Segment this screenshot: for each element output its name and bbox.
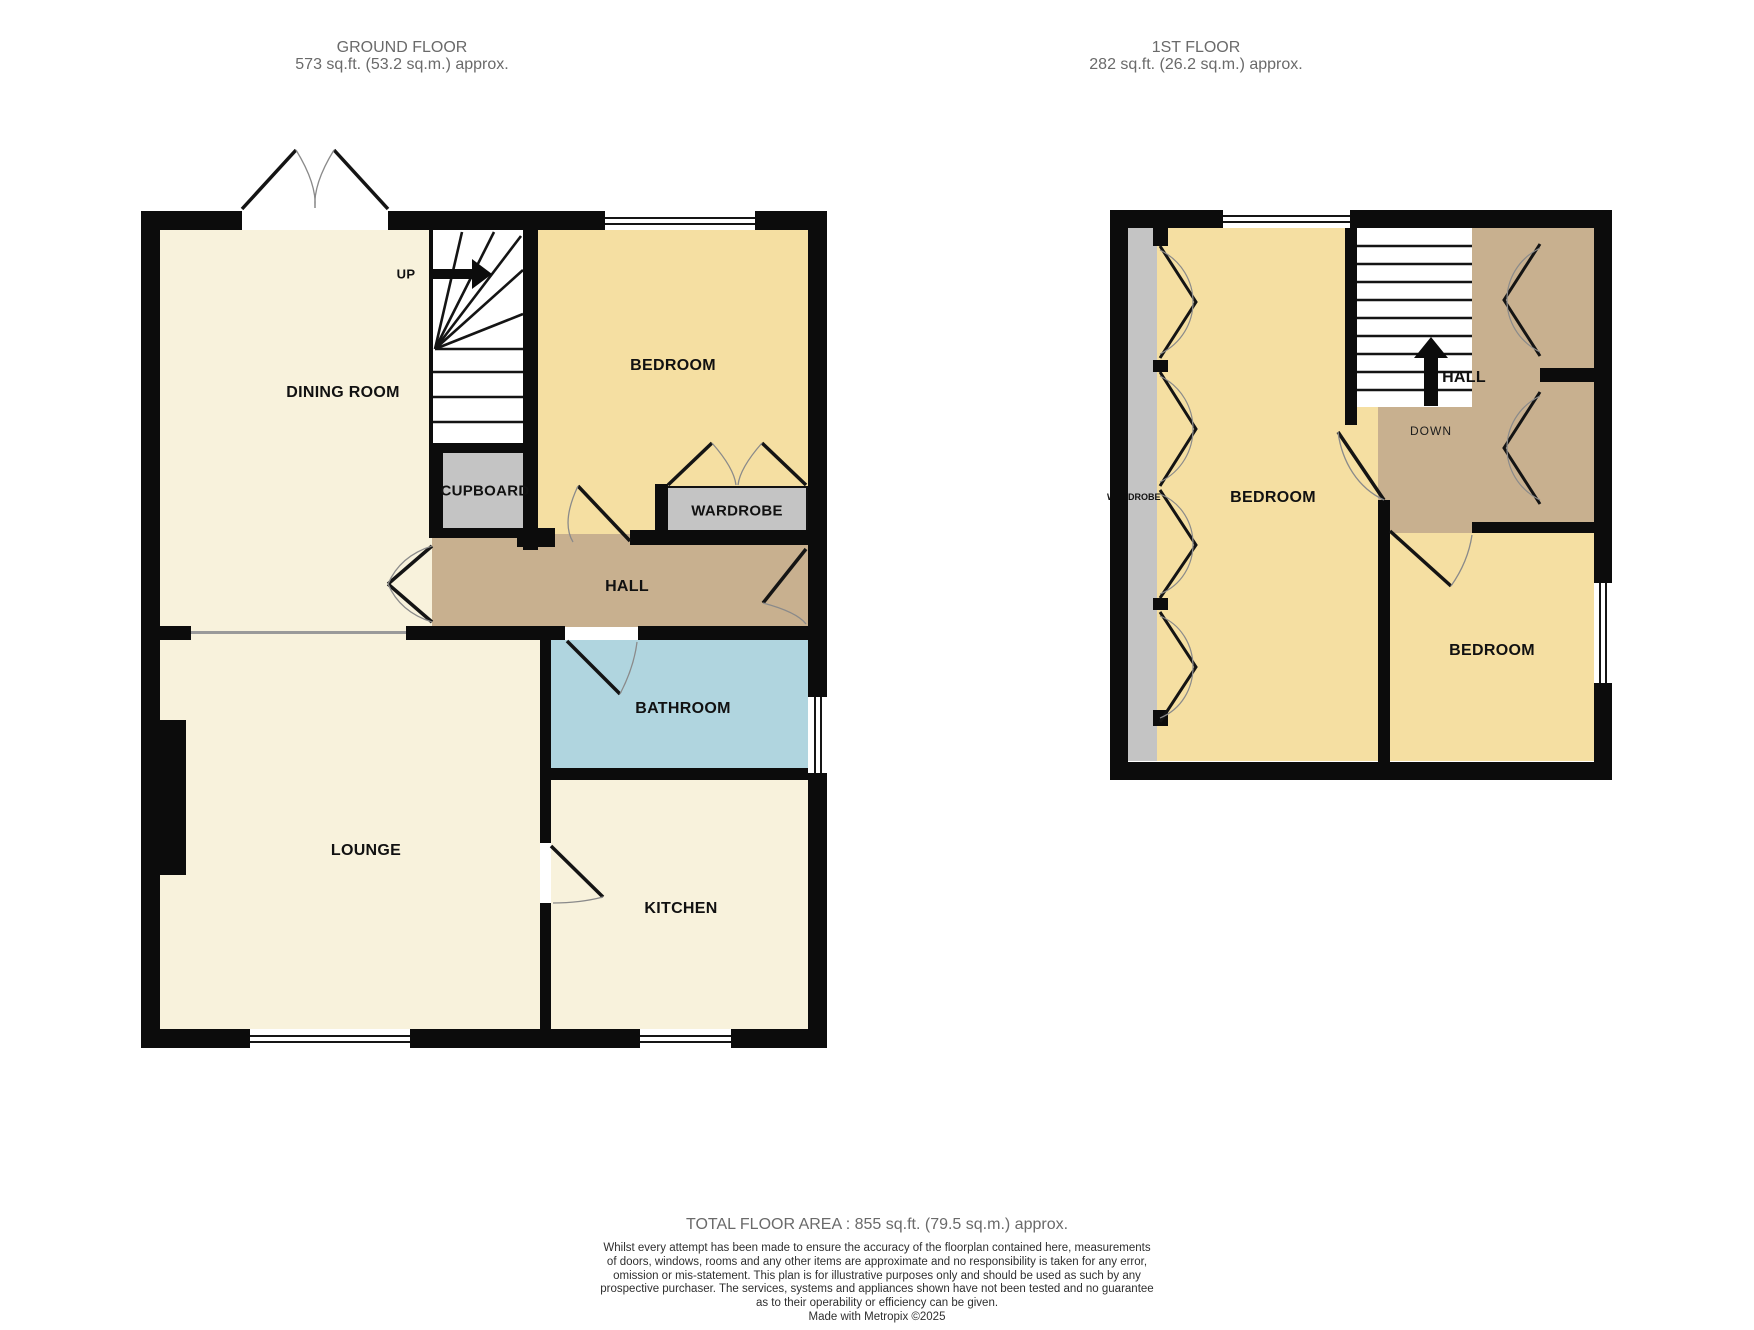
door-arcs xyxy=(296,150,334,208)
wall xyxy=(540,903,551,1030)
wall xyxy=(517,528,555,547)
dining-room-label: DINING ROOM xyxy=(286,384,400,402)
total-floor-area: TOTAL FLOOR AREA : 855 sq.ft. (79.5 sq.m… xyxy=(447,1216,1307,1234)
window xyxy=(1594,583,1612,683)
wall xyxy=(429,230,433,443)
window-pane-line xyxy=(820,697,822,773)
window-pane-line xyxy=(640,1035,731,1037)
hall-ff-label: HALL xyxy=(1442,369,1486,387)
ground-floor-title: GROUND FLOOR 573 sq.ft. (53.2 sq.m.) app… xyxy=(142,39,662,73)
wall xyxy=(551,768,808,780)
double-door-dining-exterior xyxy=(242,150,388,209)
first-floor-title-line2: 282 sq.ft. (26.2 sq.m.) approx. xyxy=(936,56,1456,73)
window-pane-line xyxy=(1223,215,1350,217)
wall xyxy=(1472,522,1594,533)
disclaimer-line: prospective purchaser. The services, sys… xyxy=(447,1283,1307,1297)
open-plan-divider xyxy=(191,631,406,634)
ground-floor-title-line1: GROUND FLOOR xyxy=(142,39,662,56)
window xyxy=(605,211,755,230)
disclaimer: Whilst every attempt has been made to en… xyxy=(447,1242,1307,1311)
wall xyxy=(523,230,538,550)
wall xyxy=(540,640,551,843)
kitchen-label: KITCHEN xyxy=(644,900,717,918)
patio-door-opening xyxy=(242,211,388,230)
wardrobe-gf-label: WARDROBE xyxy=(691,503,783,520)
first-floor-title: 1ST FLOOR 282 sq.ft. (26.2 sq.m.) approx… xyxy=(936,39,1456,73)
room-dining xyxy=(160,230,432,633)
bedroom-gf-label: BEDROOM xyxy=(630,357,716,375)
wall xyxy=(638,626,808,640)
window-pane-line xyxy=(250,1035,410,1037)
window xyxy=(808,697,827,773)
wall xyxy=(1110,210,1128,780)
wall xyxy=(141,211,160,1048)
wall xyxy=(1153,598,1168,610)
metropix-credit: Made with Metropix ©2025 xyxy=(447,1311,1307,1325)
down-label: DOWN xyxy=(1410,424,1452,438)
window-pane-line xyxy=(605,217,755,219)
wall xyxy=(655,484,668,545)
window-pane-line xyxy=(1223,221,1350,223)
window xyxy=(1223,210,1350,228)
disclaimer-line: omission or mis-statement. This plan is … xyxy=(447,1270,1307,1284)
ground-floor-title-line2: 573 sq.ft. (53.2 sq.m.) approx. xyxy=(142,56,662,73)
wall xyxy=(808,211,827,1048)
window xyxy=(250,1029,410,1048)
window xyxy=(640,1029,731,1048)
disclaimer-line: as to their operability or efficiency ca… xyxy=(447,1297,1307,1311)
bedroom-ff-right-label: BEDROOM xyxy=(1449,642,1535,660)
window-pane-line xyxy=(640,1041,731,1043)
wall xyxy=(406,626,565,640)
first-floor-title-line1: 1ST FLOOR xyxy=(936,39,1456,56)
wall xyxy=(1153,228,1168,246)
wall xyxy=(1345,228,1357,425)
disclaimer-line: of doors, windows, rooms and any other i… xyxy=(447,1256,1307,1270)
wall xyxy=(160,626,191,640)
room-lounge xyxy=(160,633,540,1030)
wall xyxy=(1110,210,1612,228)
chimney-breast xyxy=(159,720,186,875)
lounge-label: LOUNGE xyxy=(331,842,401,860)
wall xyxy=(1540,368,1594,382)
window-pane-line xyxy=(1599,583,1601,683)
bathroom-label: BATHROOM xyxy=(635,700,730,718)
wall xyxy=(1378,500,1390,762)
wall xyxy=(1153,360,1168,372)
wall xyxy=(429,443,538,453)
hall-gf-label: HALL xyxy=(605,578,649,596)
window-pane-line xyxy=(1605,583,1607,683)
stairs-gf-area xyxy=(433,230,523,443)
disclaimer-line: Whilst every attempt has been made to en… xyxy=(447,1242,1307,1256)
footer: TOTAL FLOOR AREA : 855 sq.ft. (79.5 sq.m… xyxy=(447,1216,1307,1325)
window-pane-line xyxy=(814,697,816,773)
wall xyxy=(1153,710,1168,726)
window-pane-line xyxy=(605,223,755,225)
window-pane-line xyxy=(250,1041,410,1043)
cupboard-label: CUPBOARD xyxy=(440,483,529,500)
floorplan-page: GROUND FLOOR 573 sq.ft. (53.2 sq.m.) app… xyxy=(0,0,1754,1330)
wall xyxy=(1110,762,1612,780)
wall xyxy=(1594,210,1612,780)
bedroom-ff-left-label: BEDROOM xyxy=(1230,489,1316,507)
up-label: UP xyxy=(397,267,416,282)
